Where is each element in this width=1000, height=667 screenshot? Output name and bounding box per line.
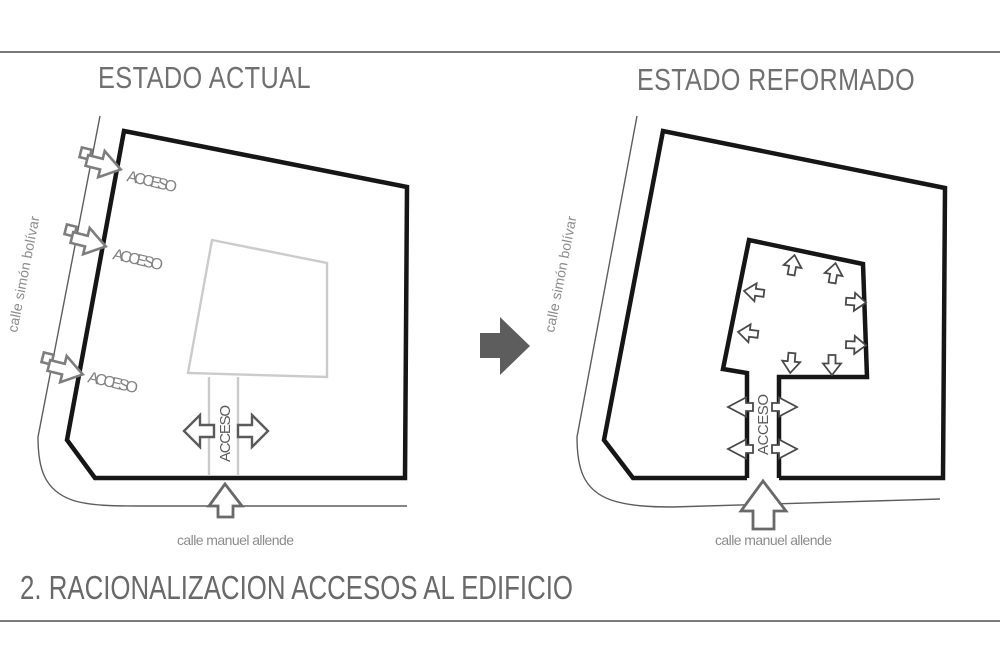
section-title: 2. RACIONALIZACION ACCESOS AL EDIFICIO: [20, 569, 573, 606]
transform-arrow-icon: [480, 317, 530, 375]
right-diagram-title: ESTADO REFORMADO: [637, 62, 915, 97]
street-entry-arrow-icon: [741, 481, 786, 529]
street-entry-arrow-icon: [209, 484, 242, 517]
street-side-label: calle simón bolívar: [541, 214, 579, 333]
corridor-access-label: ACCESO: [755, 393, 772, 455]
corridor-access-label: ACCESO: [217, 404, 234, 462]
right-diagram: ESTADO REFORMADO ACCESO calle simón bolí…: [541, 62, 945, 548]
street-bottom-label: calle manuel allende: [177, 532, 294, 548]
street-side-label: calle simón bolívar: [4, 214, 42, 333]
left-diagram: ESTADO ACTUAL ACCESO ACCESO ACCESO ACCES…: [4, 60, 407, 548]
site-plan-canvas: ESTADO ACTUAL ACCESO ACCESO ACCESO ACCES…: [0, 0, 1000, 667]
left-diagram-title: ESTADO ACTUAL: [98, 60, 311, 95]
street-bottom-label: calle manuel allende: [715, 532, 832, 548]
building-outline: [188, 240, 327, 377]
